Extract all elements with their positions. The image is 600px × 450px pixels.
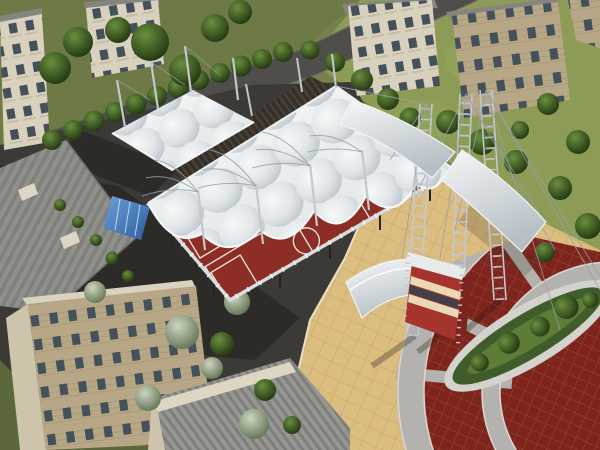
blossom-tree bbox=[135, 385, 161, 411]
tree bbox=[351, 69, 373, 91]
blossom-tree bbox=[165, 315, 199, 349]
tree bbox=[126, 94, 147, 115]
apartment-building-1 bbox=[0, 8, 50, 150]
tree bbox=[283, 416, 301, 434]
tree bbox=[42, 130, 62, 150]
aerial-render: Aerial 3D architectural render: tensile-… bbox=[0, 0, 600, 450]
bush bbox=[54, 199, 66, 211]
render-viewport: Aerial 3D architectural render: tensile-… bbox=[0, 0, 600, 450]
tree bbox=[169, 54, 201, 86]
tree bbox=[39, 52, 71, 84]
tree bbox=[201, 14, 229, 42]
blossom-tree bbox=[239, 409, 269, 439]
blossom-tree bbox=[201, 357, 223, 379]
tree bbox=[566, 130, 590, 154]
tree bbox=[63, 27, 93, 57]
tree bbox=[273, 42, 293, 62]
tree bbox=[210, 332, 234, 356]
bush bbox=[106, 252, 119, 265]
tree bbox=[63, 120, 83, 140]
tree bbox=[575, 213, 600, 239]
bush bbox=[122, 270, 134, 282]
tree bbox=[252, 49, 272, 69]
tree bbox=[131, 23, 169, 61]
bush bbox=[90, 234, 102, 246]
tree bbox=[84, 111, 105, 132]
tree bbox=[537, 93, 559, 115]
tree bbox=[511, 121, 529, 139]
blossom-tree bbox=[84, 281, 106, 303]
bush bbox=[72, 216, 84, 228]
tree bbox=[228, 0, 252, 24]
tree bbox=[105, 17, 131, 43]
tree bbox=[301, 41, 320, 60]
tree bbox=[254, 379, 276, 401]
tree bbox=[325, 52, 345, 72]
tree bbox=[210, 63, 230, 83]
tree bbox=[377, 88, 399, 110]
